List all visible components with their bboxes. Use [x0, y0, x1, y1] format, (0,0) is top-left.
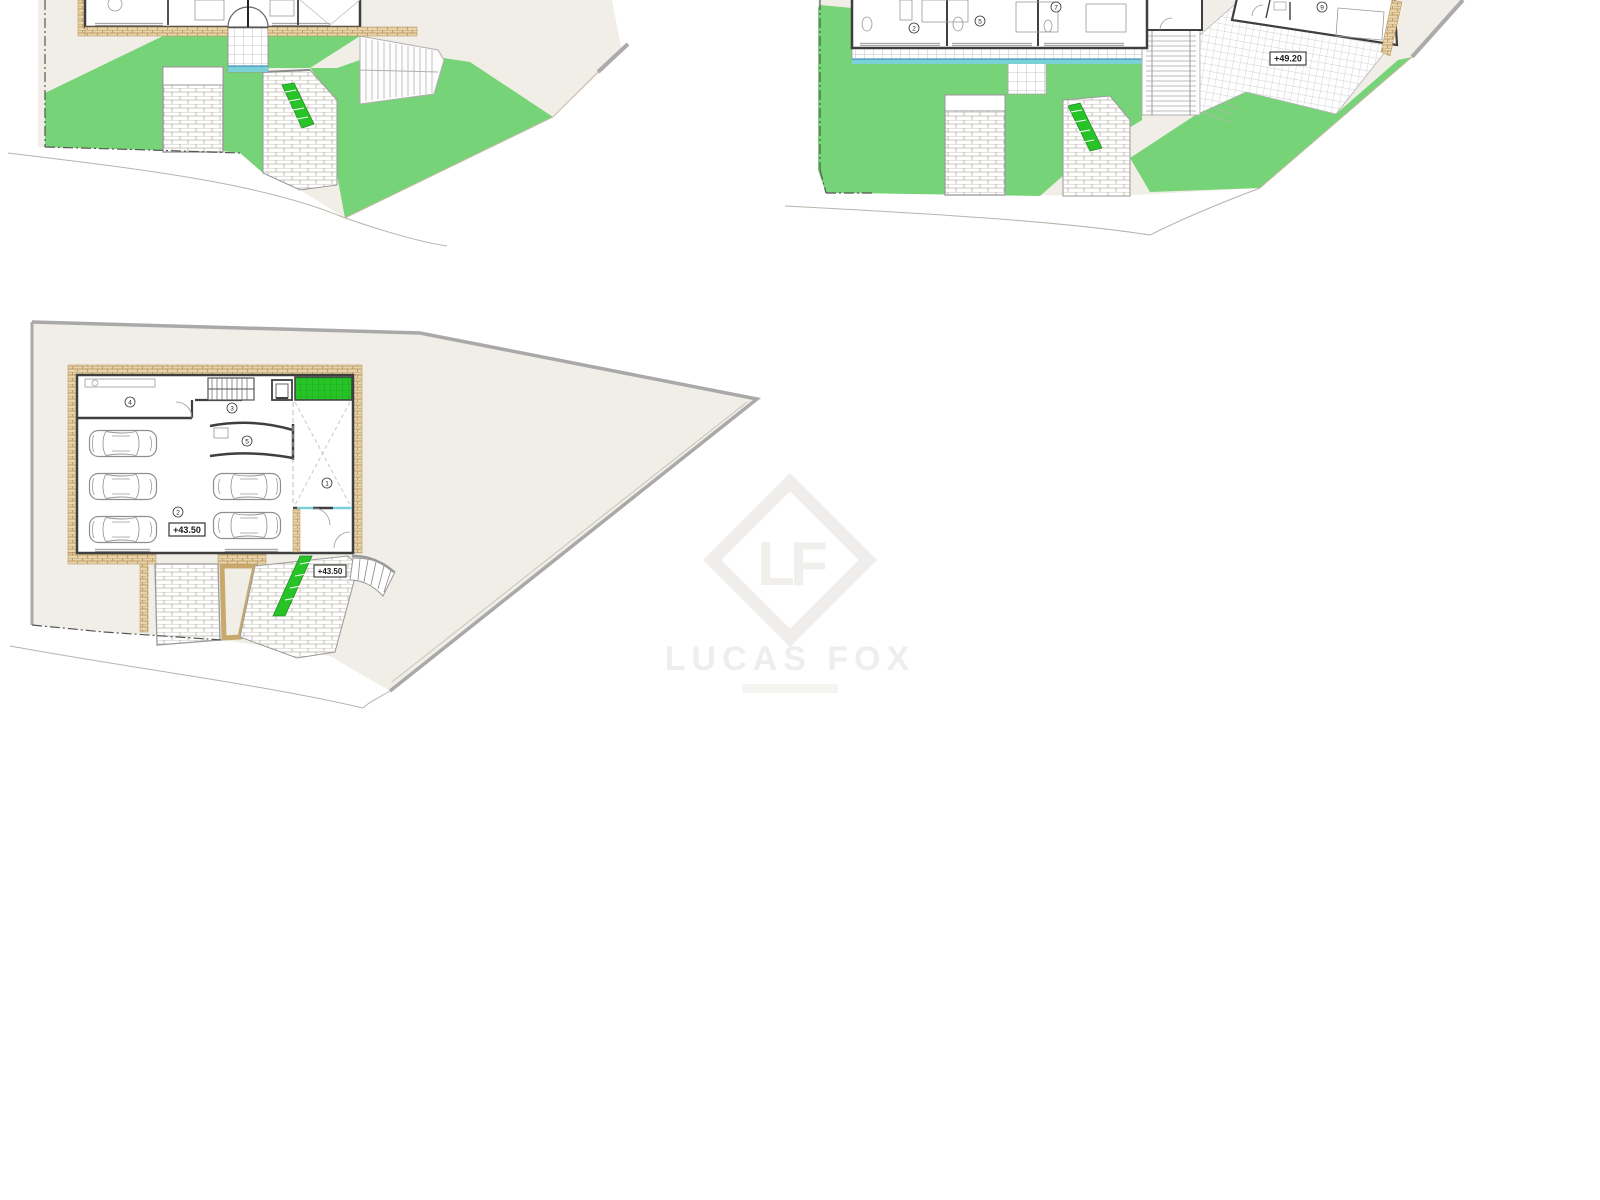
paved-path	[263, 70, 337, 190]
brick-border	[218, 553, 266, 564]
elevation-label-entry: +43.50	[314, 565, 346, 577]
room-number-5: 5	[242, 436, 252, 446]
planter	[295, 377, 352, 400]
interior-stairs	[208, 378, 254, 400]
brick-border	[68, 553, 156, 564]
svg-text:5: 5	[978, 18, 982, 25]
car-icon	[90, 517, 157, 543]
watermark-name: LUCAS FOX	[665, 640, 915, 678]
car-icon	[90, 474, 157, 500]
car-icon	[214, 513, 281, 539]
building-garage: 4 3 5 2 1 +43.50	[68, 365, 362, 564]
plan-upper-right: 2 5 7 9 +49.20	[785, 0, 1463, 235]
bath-fixture	[862, 17, 872, 31]
building-hall	[1147, 0, 1202, 30]
brick-border	[68, 375, 77, 553]
svg-text:7: 7	[1054, 4, 1058, 11]
floor-plan-canvas: LF LUCAS FOX	[0, 0, 1600, 1200]
paved-path	[163, 67, 223, 152]
terrace-pool-strip	[852, 47, 1142, 64]
svg-text:5: 5	[245, 438, 249, 445]
bath-fixture	[1044, 20, 1052, 32]
room-number-1: 1	[322, 478, 332, 488]
room-number-3: 3	[227, 403, 237, 413]
entrance-stoop	[228, 27, 268, 72]
paved-path	[1063, 96, 1130, 196]
tiled-patio	[1008, 62, 1046, 94]
svg-text:+43.50: +43.50	[173, 525, 201, 535]
svg-text:2: 2	[912, 25, 916, 32]
paved-path	[155, 564, 220, 645]
furniture-table	[108, 0, 122, 11]
bath-fixture	[953, 17, 963, 31]
elevator	[272, 380, 292, 400]
svg-text:+49.20: +49.20	[1274, 54, 1302, 64]
svg-text:2: 2	[176, 509, 180, 516]
lucasfox-watermark: LF LUCAS FOX	[665, 482, 915, 693]
brick-border	[85, 27, 228, 36]
elevation-label-garage: +43.50	[169, 523, 205, 536]
plan-basement: +43.50	[10, 322, 757, 708]
car-icon	[90, 431, 157, 457]
svg-text:9: 9	[1320, 4, 1324, 11]
svg-text:4: 4	[128, 399, 132, 406]
brick-border	[68, 365, 362, 375]
room-number-2: 2	[909, 23, 919, 33]
room-number-4: 4	[125, 397, 135, 407]
watermark-monogram: LF	[757, 530, 826, 599]
car-icon	[214, 474, 281, 500]
elevation-label: +49.20	[1270, 52, 1306, 65]
floor-plan-sheet: LF LUCAS FOX	[0, 0, 1600, 1200]
grass-area	[818, 5, 852, 193]
room-number-5: 5	[975, 16, 985, 26]
brick-border	[140, 564, 148, 632]
room-number-9: 9	[1317, 2, 1327, 12]
svg-text:1: 1	[325, 480, 329, 487]
building-bedroom-floor	[852, 0, 1147, 48]
pool-edge	[852, 59, 1142, 64]
svg-text:+43.50: +43.50	[318, 567, 343, 576]
paved-path	[945, 95, 1005, 195]
room-number-7: 7	[1051, 2, 1061, 12]
brick-border	[268, 27, 417, 36]
plan-upper-left	[8, 0, 628, 246]
brick-border	[293, 509, 300, 552]
watermark-tagline-bar	[742, 684, 838, 693]
grass-area	[223, 67, 263, 173]
brick-border	[353, 375, 362, 553]
room-number-2: 2	[173, 507, 183, 517]
svg-text:3: 3	[230, 405, 234, 412]
